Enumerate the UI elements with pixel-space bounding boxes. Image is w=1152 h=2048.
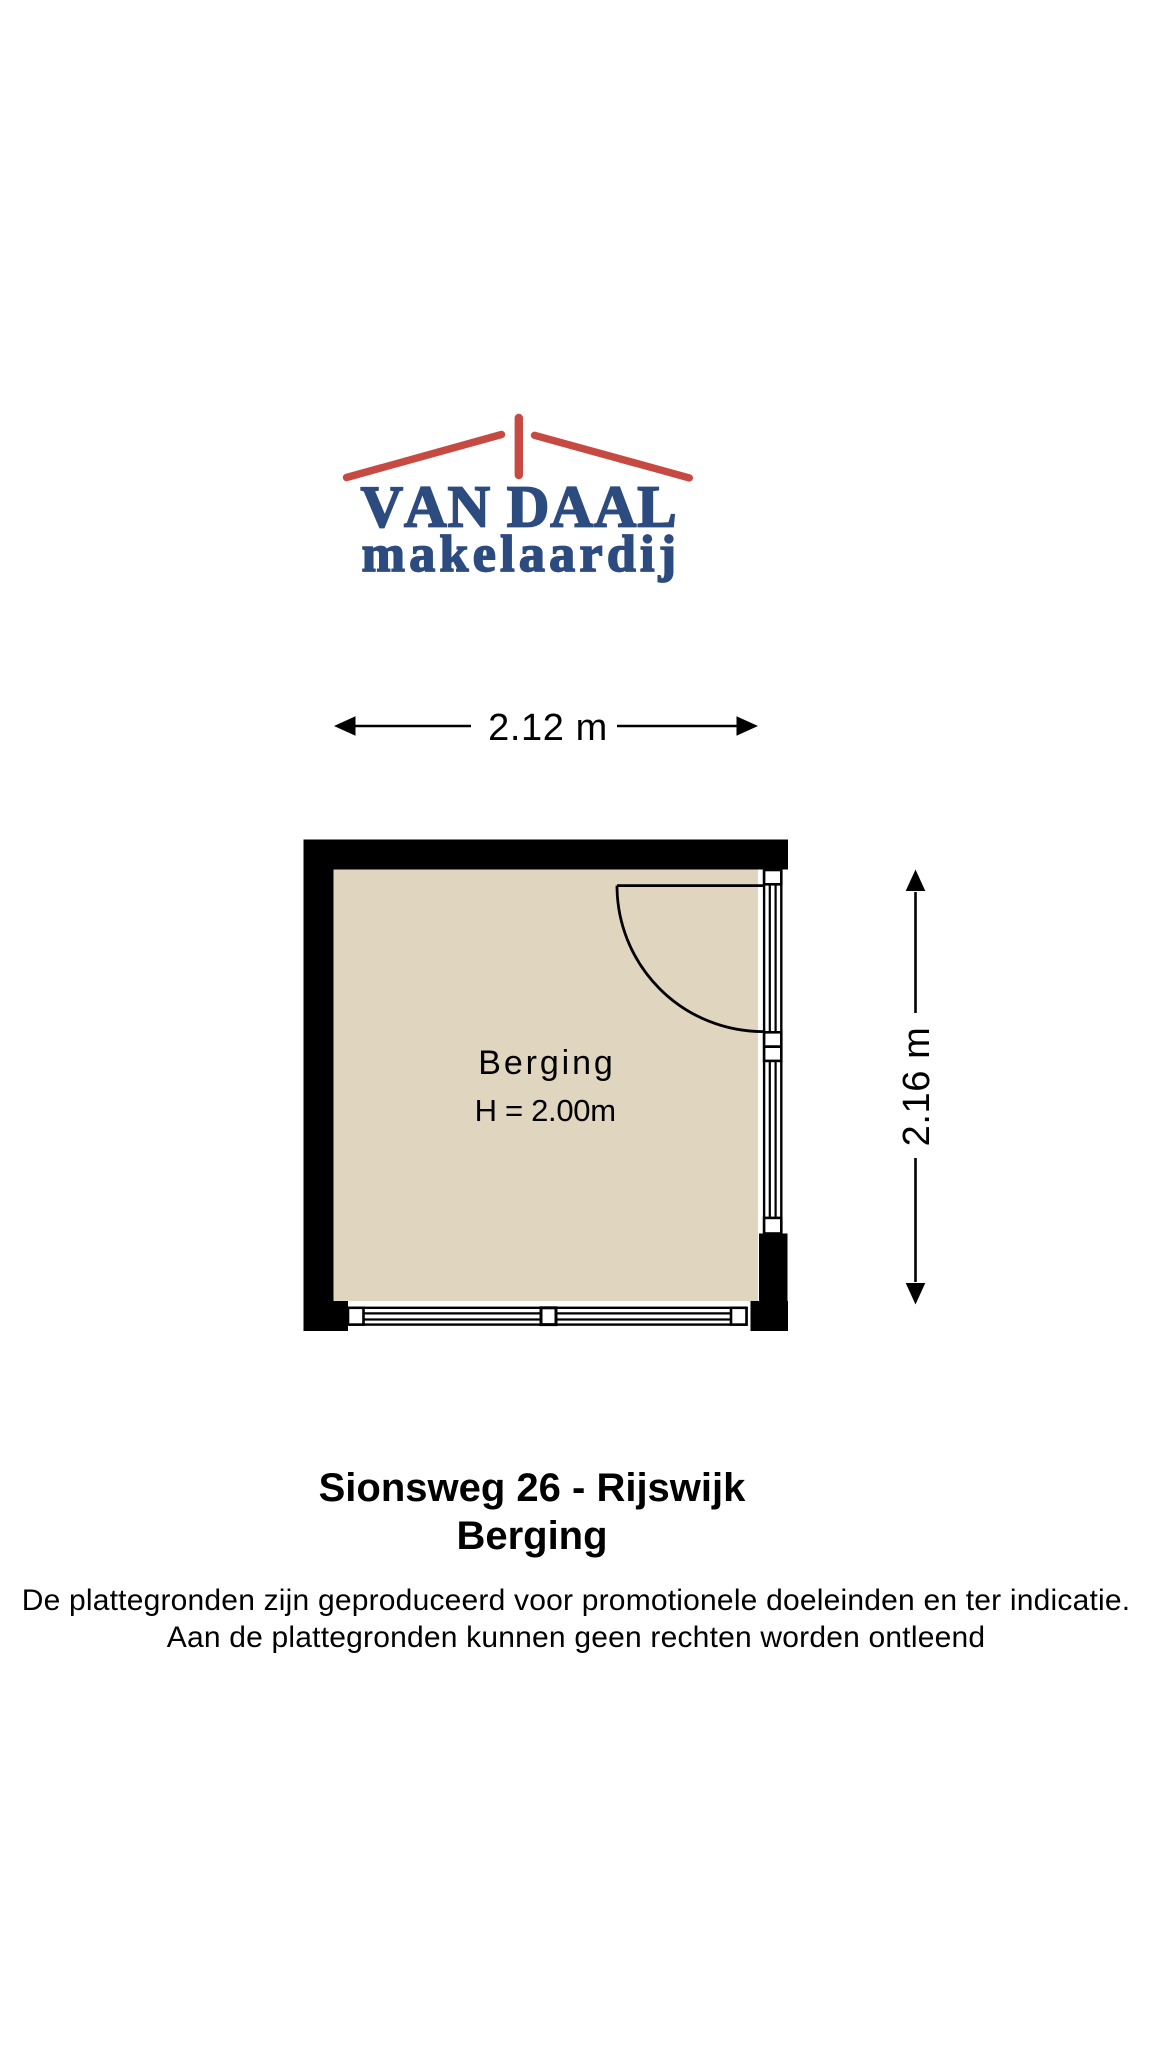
svg-text:makelaardij: makelaardij [362,526,681,583]
svg-text:Berging: Berging [456,1514,607,1558]
svg-text:Aan de plattegronden kunnen ge: Aan de plattegronden kunnen geen rechten… [167,1621,986,1654]
svg-text:H = 2.00m: H = 2.00m [475,1093,616,1128]
svg-text:2.16 m: 2.16 m [896,1027,938,1147]
svg-text:Berging: Berging [478,1044,616,1082]
svg-text:2.12 m: 2.12 m [488,707,608,749]
svg-text:De plattegronden zijn geproduc: De plattegronden zijn geproduceerd voor … [22,1584,1131,1617]
svg-text:Sionsweg 26 - Rijswijk: Sionsweg 26 - Rijswijk [319,1466,747,1510]
